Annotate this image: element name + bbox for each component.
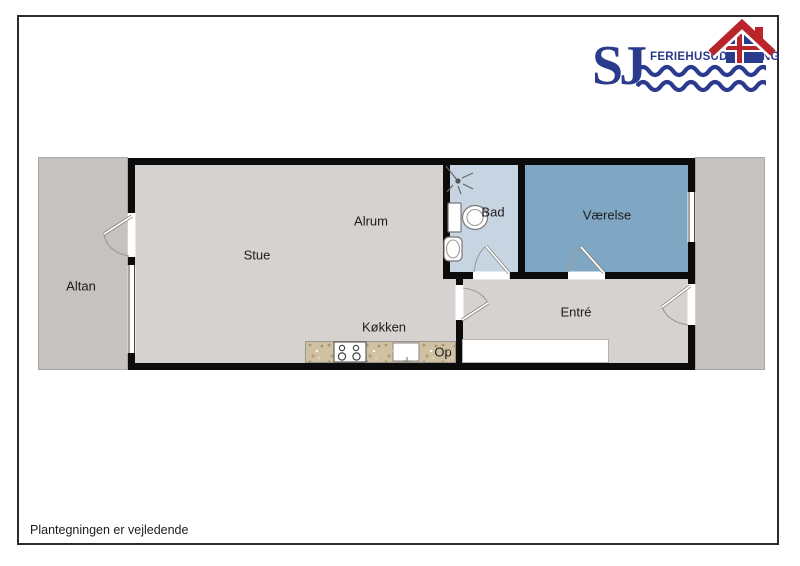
room-label-bad: Bad — [481, 205, 504, 220]
room-label-kokken: Køkken — [362, 320, 406, 335]
wall — [443, 272, 473, 279]
stairs — [462, 339, 609, 363]
room-label-entre: Entré — [560, 305, 591, 320]
wall — [510, 272, 568, 279]
balcony-area — [38, 157, 128, 370]
room-label-vaerelse: Værelse — [583, 208, 631, 223]
wall — [518, 165, 525, 279]
room-label-stue: Stue — [244, 248, 271, 263]
room-label-alrum: Alrum — [354, 214, 388, 229]
wall — [443, 165, 450, 279]
disclaimer-text: Plantegningen er vejledende — [30, 523, 188, 537]
wall — [456, 279, 463, 285]
page: SJ FERIEHUSUDLEJNING — [0, 0, 800, 566]
room-label-altan: Altan — [66, 279, 96, 294]
stairs-label-op: Op — [434, 345, 451, 360]
wall — [605, 272, 695, 279]
house-icon — [704, 18, 776, 82]
right-terrace-area — [695, 157, 765, 370]
